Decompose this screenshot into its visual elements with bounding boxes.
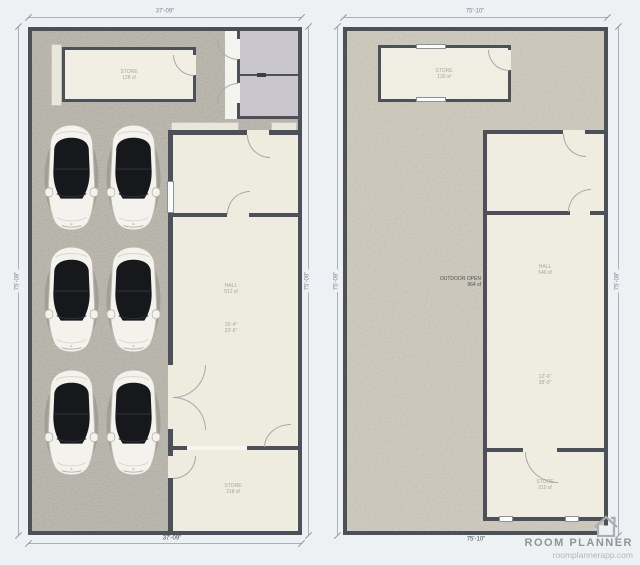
window	[167, 181, 174, 213]
wall-bench	[51, 44, 62, 106]
dimension-label-left-bottom: 37'-09"	[161, 536, 184, 543]
dimension-line-left-bottom	[28, 543, 302, 544]
watermark-title: ROOM PLANNER	[525, 537, 633, 550]
wide-opening	[187, 446, 247, 450]
room-label-hall-right-dims: 12'-6" 38'-0"	[539, 374, 552, 386]
watermark-link[interactable]: roomplannerapp.com	[525, 550, 633, 561]
car[interactable]	[106, 245, 161, 353]
room-label-storage-top-right: STORE 130 sf	[435, 68, 452, 80]
dimension-label-left-side: 75'-08"	[15, 270, 22, 293]
room-label-store-bottom: STORE 218 sf	[224, 483, 241, 495]
room-label-hall: HALL 512 sf	[224, 283, 238, 295]
dimension-line-left-top	[28, 17, 302, 18]
wc-divider-wall	[237, 74, 298, 76]
floorplan-canvas: 37'-09" 37'-09" 75'-08" 75'-08" STORE 12	[0, 0, 640, 565]
window	[416, 97, 446, 102]
car[interactable]	[106, 368, 161, 476]
hall-top-wall	[168, 130, 298, 135]
dimension-label-right-top: 75'-10"	[464, 9, 487, 16]
dimension-line-right-top	[343, 17, 608, 18]
car[interactable]	[106, 123, 161, 231]
window	[499, 516, 513, 522]
room-label-hall-dims: 15'-4" 33'-6"	[225, 322, 238, 334]
floorplan-right: STORE 130 sf OUTDOOR OPEN 964 sf HALL 54…	[343, 27, 608, 535]
room-label-store-bottom-right: STORE 210 sf	[536, 479, 553, 491]
house-icon	[593, 515, 619, 537]
dimension-label-left-right-side: 75'-08"	[305, 270, 312, 293]
wc-divider-mark	[257, 73, 266, 77]
watermark: ROOM PLANNER roomplannerapp.com	[525, 515, 633, 561]
car[interactable]	[44, 368, 99, 476]
room-label-hall-right: HALL 540 sf	[538, 264, 552, 276]
car[interactable]	[44, 123, 99, 231]
dimension-label-right-bottom: 75'-10"	[465, 537, 488, 544]
area-label-outdoor: OUTDOOR OPEN 964 sf	[433, 276, 481, 288]
dimension-label-left-top: 37'-09"	[154, 9, 177, 16]
dimension-label-right-right-side: 75'-08"	[615, 270, 622, 293]
car[interactable]	[44, 245, 99, 353]
floorplan-left: STORE 128 sf	[28, 27, 302, 535]
room-label-storage-top: STORE 128 sf	[120, 69, 137, 81]
window	[416, 44, 446, 49]
hall-left-wall	[483, 130, 487, 521]
dimension-label-right-left-side: 75'-08"	[334, 270, 341, 293]
